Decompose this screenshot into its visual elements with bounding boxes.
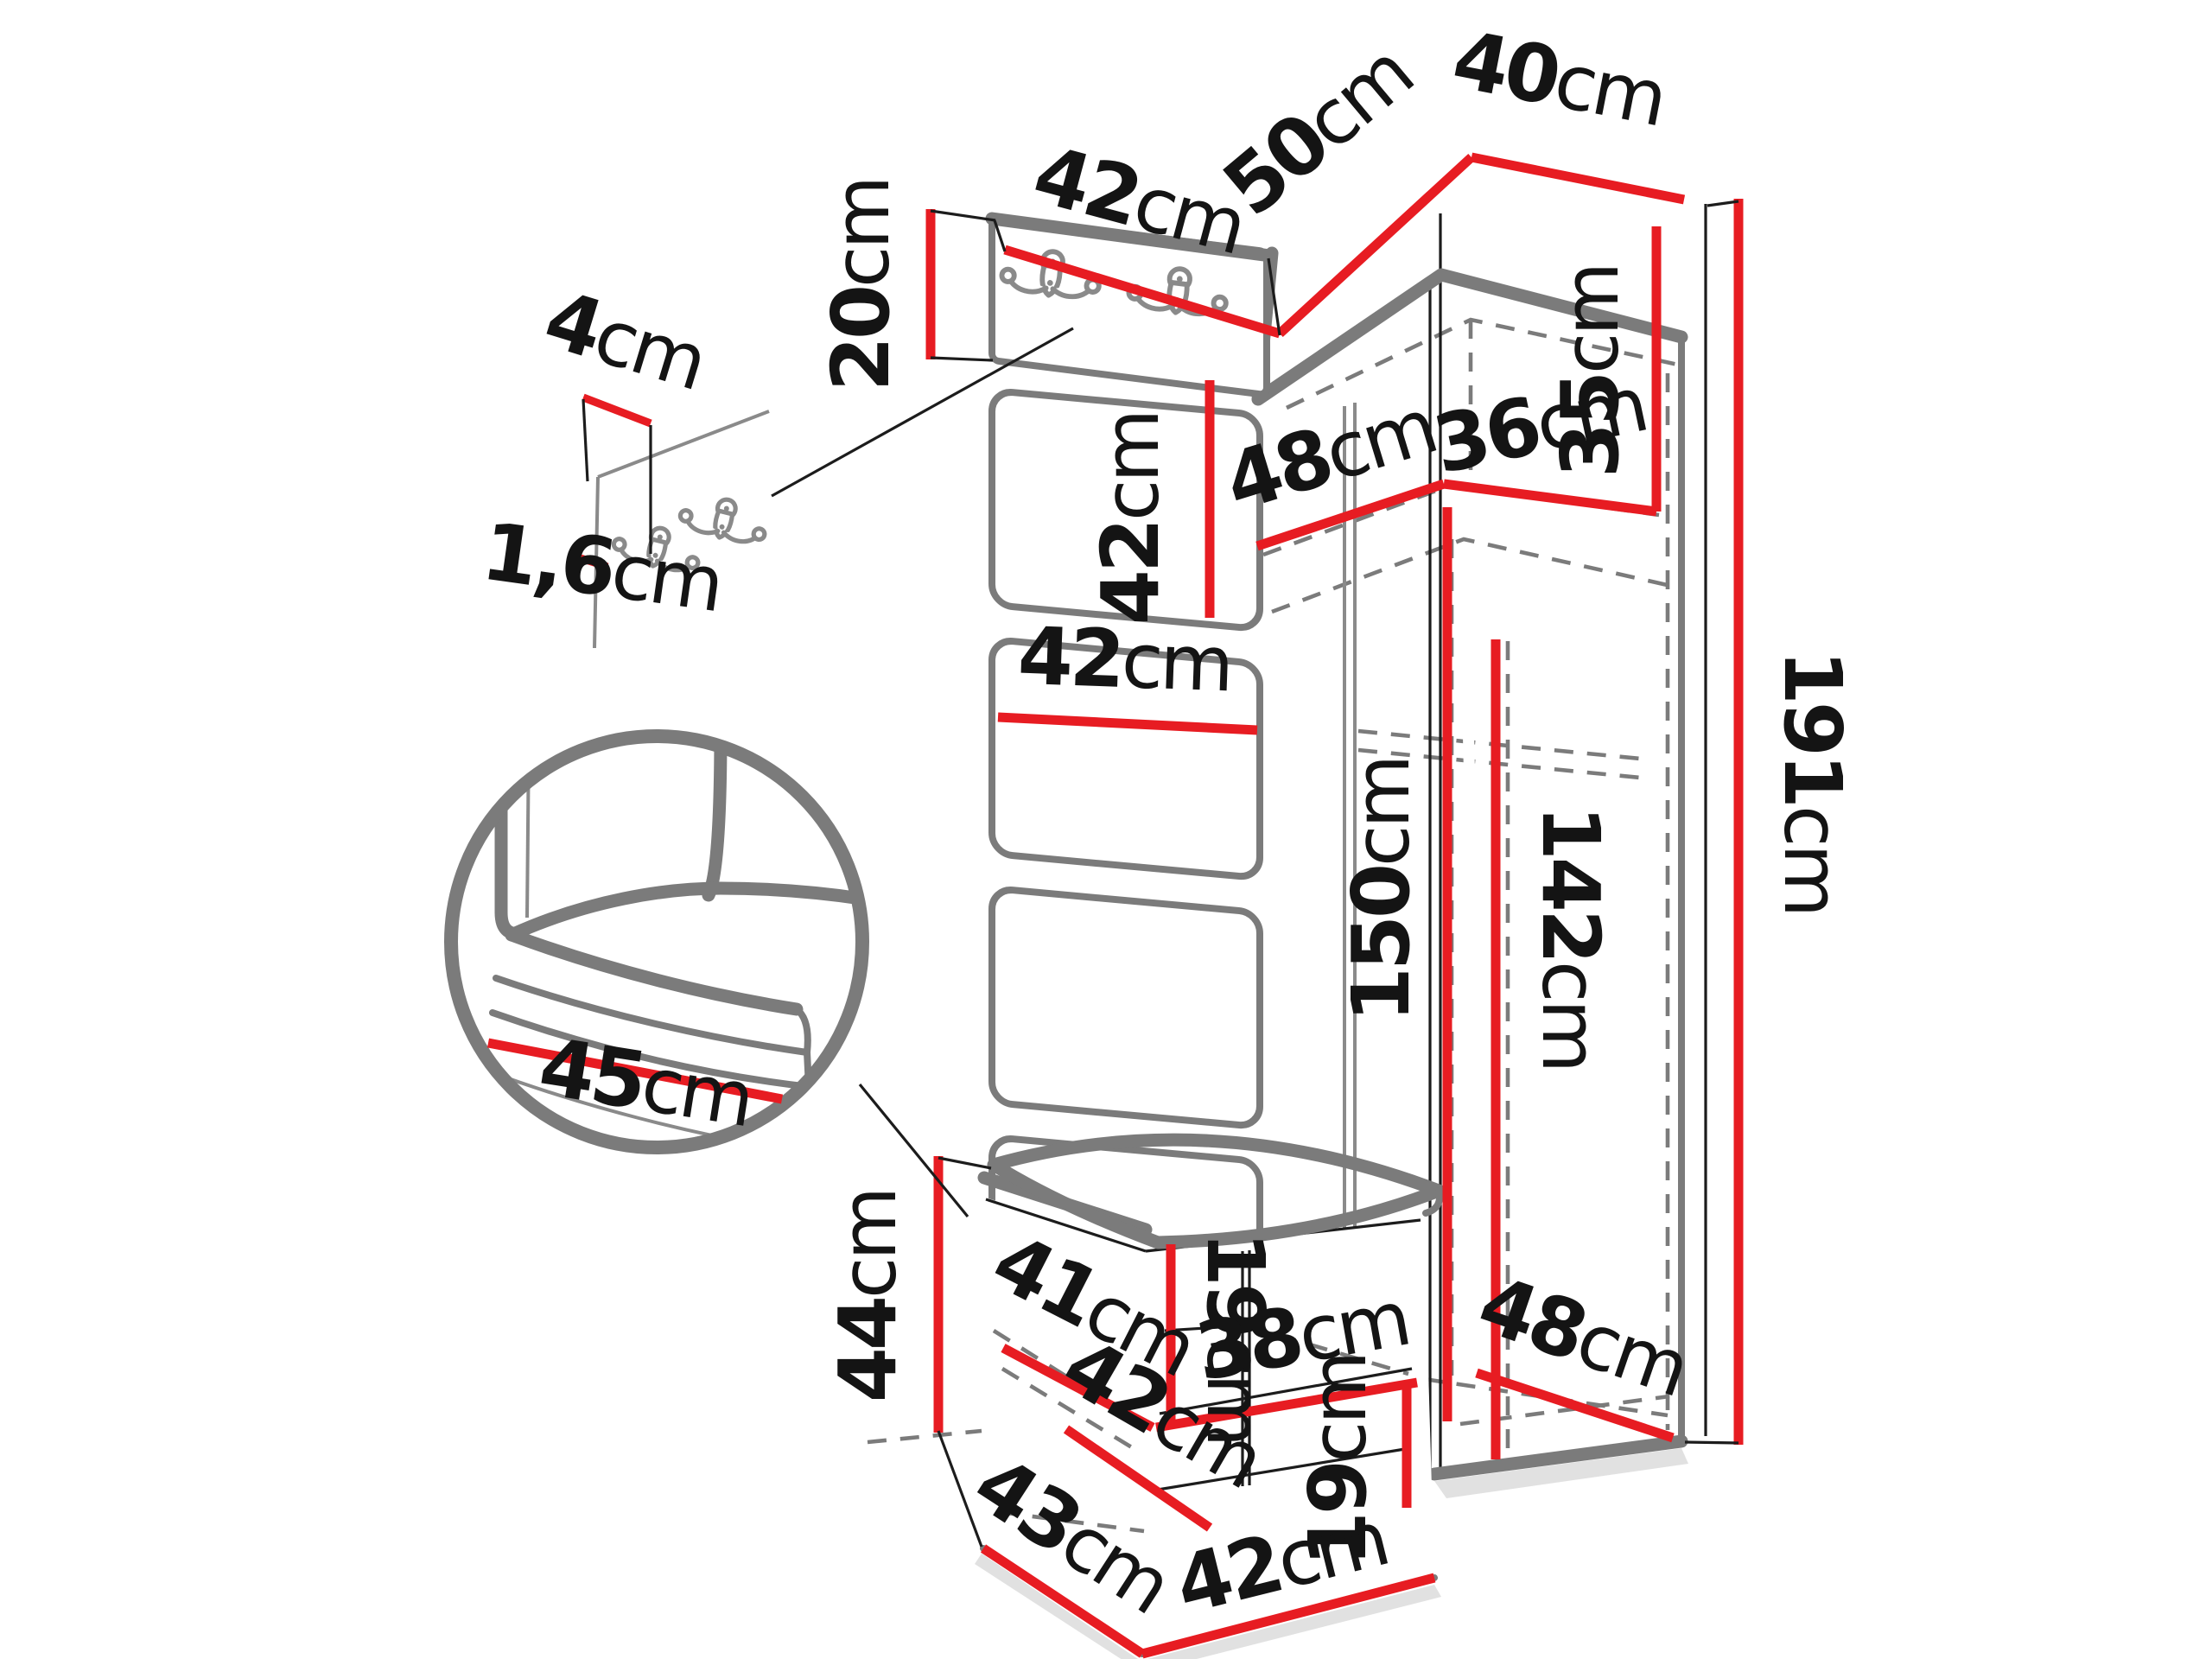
dim-upper-panel-height-label: 42cm [1084,412,1177,625]
diagram-canvas: 42cm 50cm 40cm 20cm 42cm 48cm 36cm 35cm … [0,0,2212,1659]
wardrobe-right-side-panel [1681,204,1706,1439]
dim-interior-height-left-label: 150cm [1335,758,1427,1022]
padded-panel-3 [992,888,1260,1127]
witness-191-bottom [1685,1442,1738,1443]
dim-panel-width-label: 42cm [1016,610,1232,710]
dim-hook-panel-height-label: 20cm [815,179,907,391]
dim-top-compartment-height-label: 35cm [1544,265,1637,478]
furniture-dimension-diagram: 42cm 50cm 40cm 20cm 42cm 48cm 36cm 35cm … [0,0,2212,1659]
dim-interior-height-right-label: 142cm [1524,805,1617,1070]
dim-bench-height-label: 44cm [822,1190,914,1402]
dim-total-height-label: 191cm [1766,650,1859,914]
